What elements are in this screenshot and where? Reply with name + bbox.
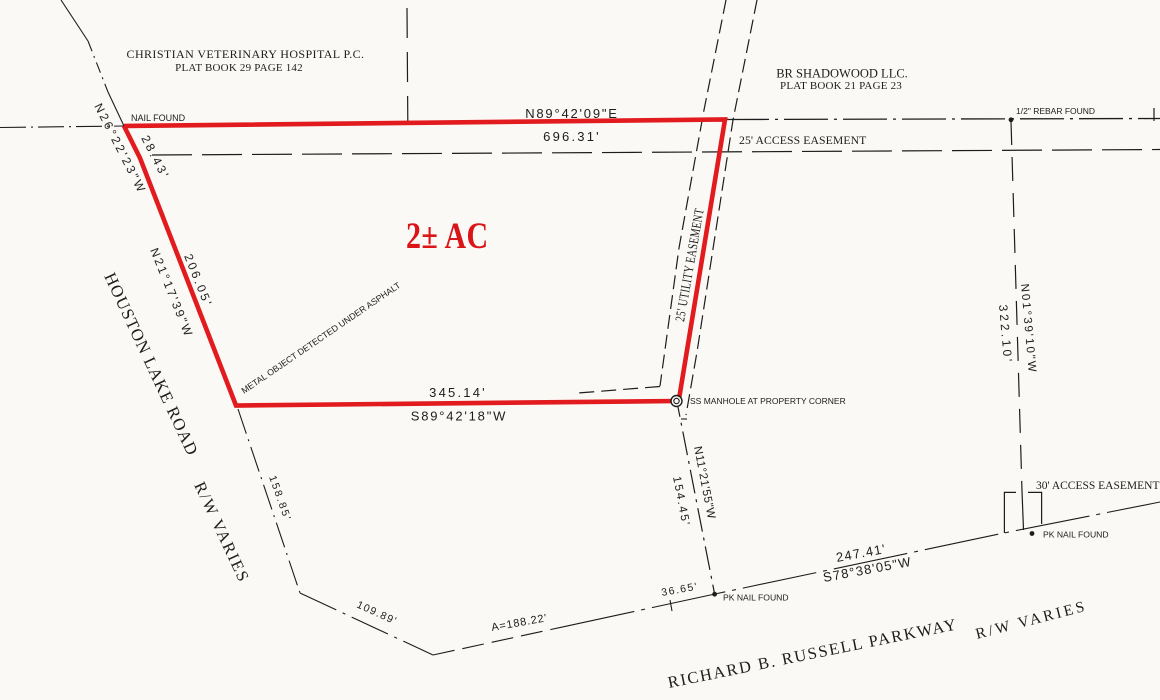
svg-text:CHRISTIAN VETERINARY HOSPITAL: CHRISTIAN VETERINARY HOSPITAL P.C. [127, 47, 365, 61]
svg-text:PK NAIL FOUND: PK NAIL FOUND [723, 593, 789, 603]
svg-text:30' ACCESS EASEMENT: 30' ACCESS EASEMENT [1036, 480, 1159, 492]
svg-text:NAIL FOUND: NAIL FOUND [131, 113, 186, 123]
svg-text:BR SHADOWOOD LLC.: BR SHADOWOOD LLC. [776, 67, 908, 81]
svg-text:SS MANHOLE AT PROPERTY CORNER: SS MANHOLE AT PROPERTY CORNER [690, 396, 846, 406]
svg-text:PK NAIL FOUND: PK NAIL FOUND [1043, 530, 1109, 540]
svg-text:2± AC: 2± AC [406, 216, 489, 257]
svg-text:S89°42'18"W: S89°42'18"W [411, 409, 507, 424]
svg-text:PLAT BOOK 29 PAGE 142: PLAT BOOK 29 PAGE 142 [175, 62, 303, 74]
svg-text:1/2" REBAR FOUND: 1/2" REBAR FOUND [1016, 106, 1095, 116]
svg-text:696.31': 696.31' [543, 129, 601, 144]
svg-text:345.14': 345.14' [429, 385, 487, 400]
svg-text:PLAT BOOK 21 PAGE 23: PLAT BOOK 21 PAGE 23 [780, 80, 902, 92]
svg-text:25' ACCESS EASEMENT: 25' ACCESS EASEMENT [739, 134, 866, 147]
